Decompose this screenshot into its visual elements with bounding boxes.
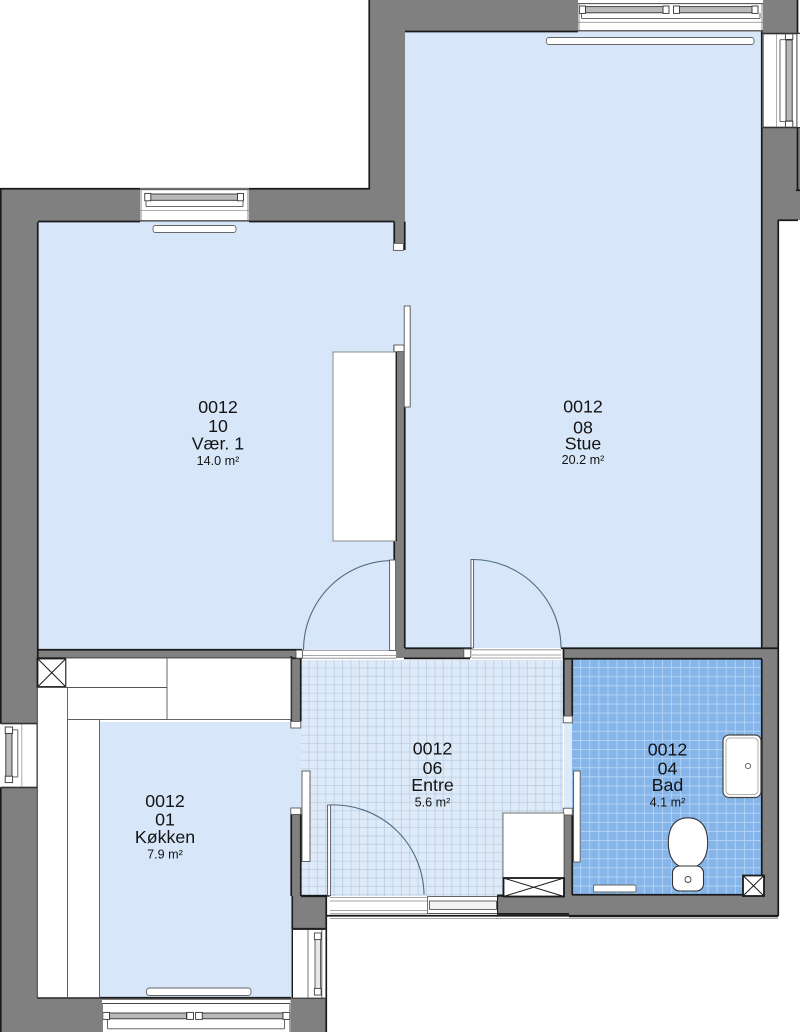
svg-text:5.6 m²: 5.6 m² bbox=[415, 795, 451, 809]
svg-text:Vær. 1: Vær. 1 bbox=[192, 433, 244, 453]
svg-text:Entre: Entre bbox=[411, 775, 454, 795]
svg-text:0012: 0012 bbox=[563, 396, 603, 416]
svg-text:20.2 m²: 20.2 m² bbox=[562, 453, 605, 467]
svg-text:14.0 m²: 14.0 m² bbox=[197, 454, 240, 468]
svg-text:0012: 0012 bbox=[145, 791, 185, 811]
svg-text:7.9 m²: 7.9 m² bbox=[147, 848, 183, 862]
svg-text:0012: 0012 bbox=[198, 397, 238, 417]
svg-text:0012: 0012 bbox=[648, 739, 688, 759]
svg-text:Køkken: Køkken bbox=[135, 827, 195, 847]
svg-text:4.1 m²: 4.1 m² bbox=[650, 795, 686, 809]
svg-text:Bad: Bad bbox=[652, 775, 684, 795]
svg-text:0012: 0012 bbox=[413, 738, 453, 758]
svg-text:Stue: Stue bbox=[565, 433, 602, 453]
